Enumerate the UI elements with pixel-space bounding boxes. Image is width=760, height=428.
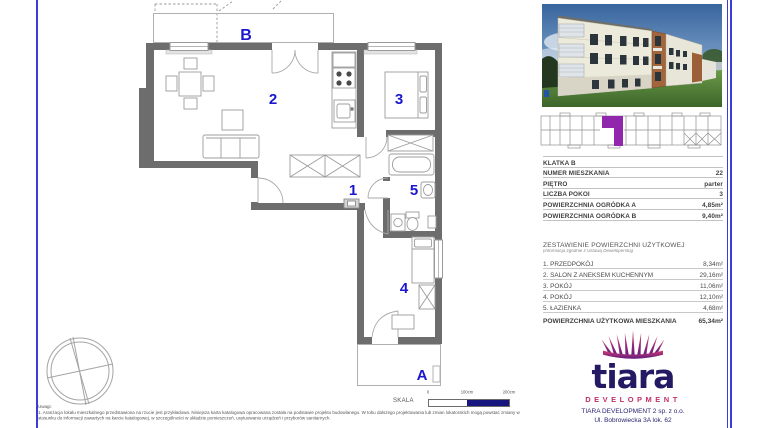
scale-label: SKALA [393, 398, 414, 404]
row-label: PIĘTRO [543, 181, 567, 188]
table-row: POWIERZCHNIA OGRÓDKA B9,40m² [543, 210, 723, 221]
brand-name: tiara [558, 360, 708, 393]
area-value: 11,06m² [700, 283, 723, 290]
garden-b-label: B [240, 27, 252, 44]
unit-info-table: KLATKA B NUMER MIESZKANIA22 PIĘTROparter… [543, 156, 723, 221]
right-border-line-thick [730, 0, 732, 428]
row-label: NUMER MIESZKANIA [543, 170, 610, 177]
room-2-label: 2 [269, 91, 277, 108]
row-label: KLATKA B [543, 160, 576, 167]
room-4-label: 4 [400, 280, 409, 297]
room-5-label: 5 [410, 182, 418, 199]
areas-section: ZESTAWIENIE POWIERZCHNI UŻYTKOWEJ (infor… [543, 242, 723, 325]
company-info: TIARA DEVELOPMENT 2 sp. z o.o. Ul. Bobro… [558, 407, 708, 425]
highlighted-unit [602, 116, 623, 146]
area-label: 5. ŁAZIENKA [543, 305, 581, 312]
area-value: 12,10m² [700, 294, 723, 301]
company-line1: TIARA DEVELOPMENT 2 sp. z o.o. [558, 407, 708, 416]
area-value: 4,68m² [703, 305, 723, 312]
table-row: LICZBA POKOI3 [543, 189, 723, 200]
scale-tick-0: 0 [427, 391, 429, 395]
garden-a-label: A [417, 367, 428, 384]
area-row: 3. POKÓJ11,06m² [543, 280, 723, 291]
brand-tagline: DEVELOPMENT [558, 395, 708, 404]
row-label: LICZBA POKOI [543, 191, 590, 198]
room-1-label: 1 [349, 182, 357, 199]
row-value: 9,40m² [702, 213, 723, 220]
company-line2: Ul. Bobrowiecka 3A lok. 62 [558, 416, 708, 425]
area-value: 8,34m² [703, 261, 723, 268]
tiara-crown-icon [599, 329, 667, 359]
doors [251, 43, 398, 344]
total-value: 65,34m² [698, 318, 723, 325]
garden-a-outline [358, 345, 441, 386]
area-row: 4. POKÓJ12,10m² [543, 291, 723, 302]
area-label: 1. PRZEDPOKÓJ [543, 261, 593, 268]
area-row: 2. SALON Z ANEKSEM KUCHENNYM29,16m² [543, 269, 723, 280]
scale-tick-100: 100cm [461, 391, 474, 395]
areas-title: ZESTAWIENIE POWIERZCHNI UŻYTKOWEJ [543, 242, 723, 249]
scale-tick-200: 200cm [503, 391, 516, 395]
area-label: 3. POKÓJ [543, 283, 572, 290]
garden-b-outline [155, 1, 281, 42]
floor-plan: 2 3 1 5 4 B A [138, 0, 448, 400]
right-border-line-thin [727, 0, 728, 428]
area-row: 1. PRZEDPOKÓJ8,34m² [543, 258, 723, 269]
row-value: 4,85m² [702, 202, 723, 209]
areas-subtitle: (informacja zgodnie z Ustawą Dewelopersk… [543, 249, 723, 254]
site-plan [538, 111, 725, 151]
table-row: PIĘTROparter [543, 178, 723, 189]
row-label: POWIERZCHNIA OGRÓDKA A [543, 202, 636, 209]
row-value: 22 [716, 170, 723, 177]
room-3-label: 3 [395, 91, 403, 108]
total-label: POWIERZCHNIA UŻYTKOWA MIESZKANIA [543, 318, 677, 325]
catalog-card-page: 2 3 1 5 4 B A [0, 0, 760, 428]
table-row: KLATKA B [543, 156, 723, 168]
logo-block: tiara DEVELOPMENT [558, 329, 708, 404]
areas-total-row: POWIERZCHNIA UŻYTKOWA MIESZKANIA 65,34m² [543, 318, 723, 325]
notes-item: 1. Aranżacja lokalu mieszkalnego przedst… [38, 411, 520, 421]
table-row: NUMER MIESZKANIA22 [543, 168, 723, 179]
building-photo [542, 4, 722, 107]
row-value: 3 [719, 191, 723, 198]
notes-block: Uwagi: 1. Aranżacja lokalu mieszkalnego … [38, 405, 533, 422]
area-label: 2. SALON Z ANEKSEM KUCHENNYM [543, 272, 653, 279]
area-row: 5. ŁAZIENKA4,68m² [543, 302, 723, 313]
row-label: POWIERZCHNIA OGRÓDKA B [543, 213, 636, 220]
area-value: 29,16m² [700, 272, 723, 279]
area-label: 4. POKÓJ [543, 294, 572, 301]
table-row: POWIERZCHNIA OGRÓDKA A4,85m² [543, 199, 723, 210]
row-value: parter [704, 181, 723, 188]
compass-rose [42, 334, 118, 408]
left-border-line [36, 0, 38, 428]
